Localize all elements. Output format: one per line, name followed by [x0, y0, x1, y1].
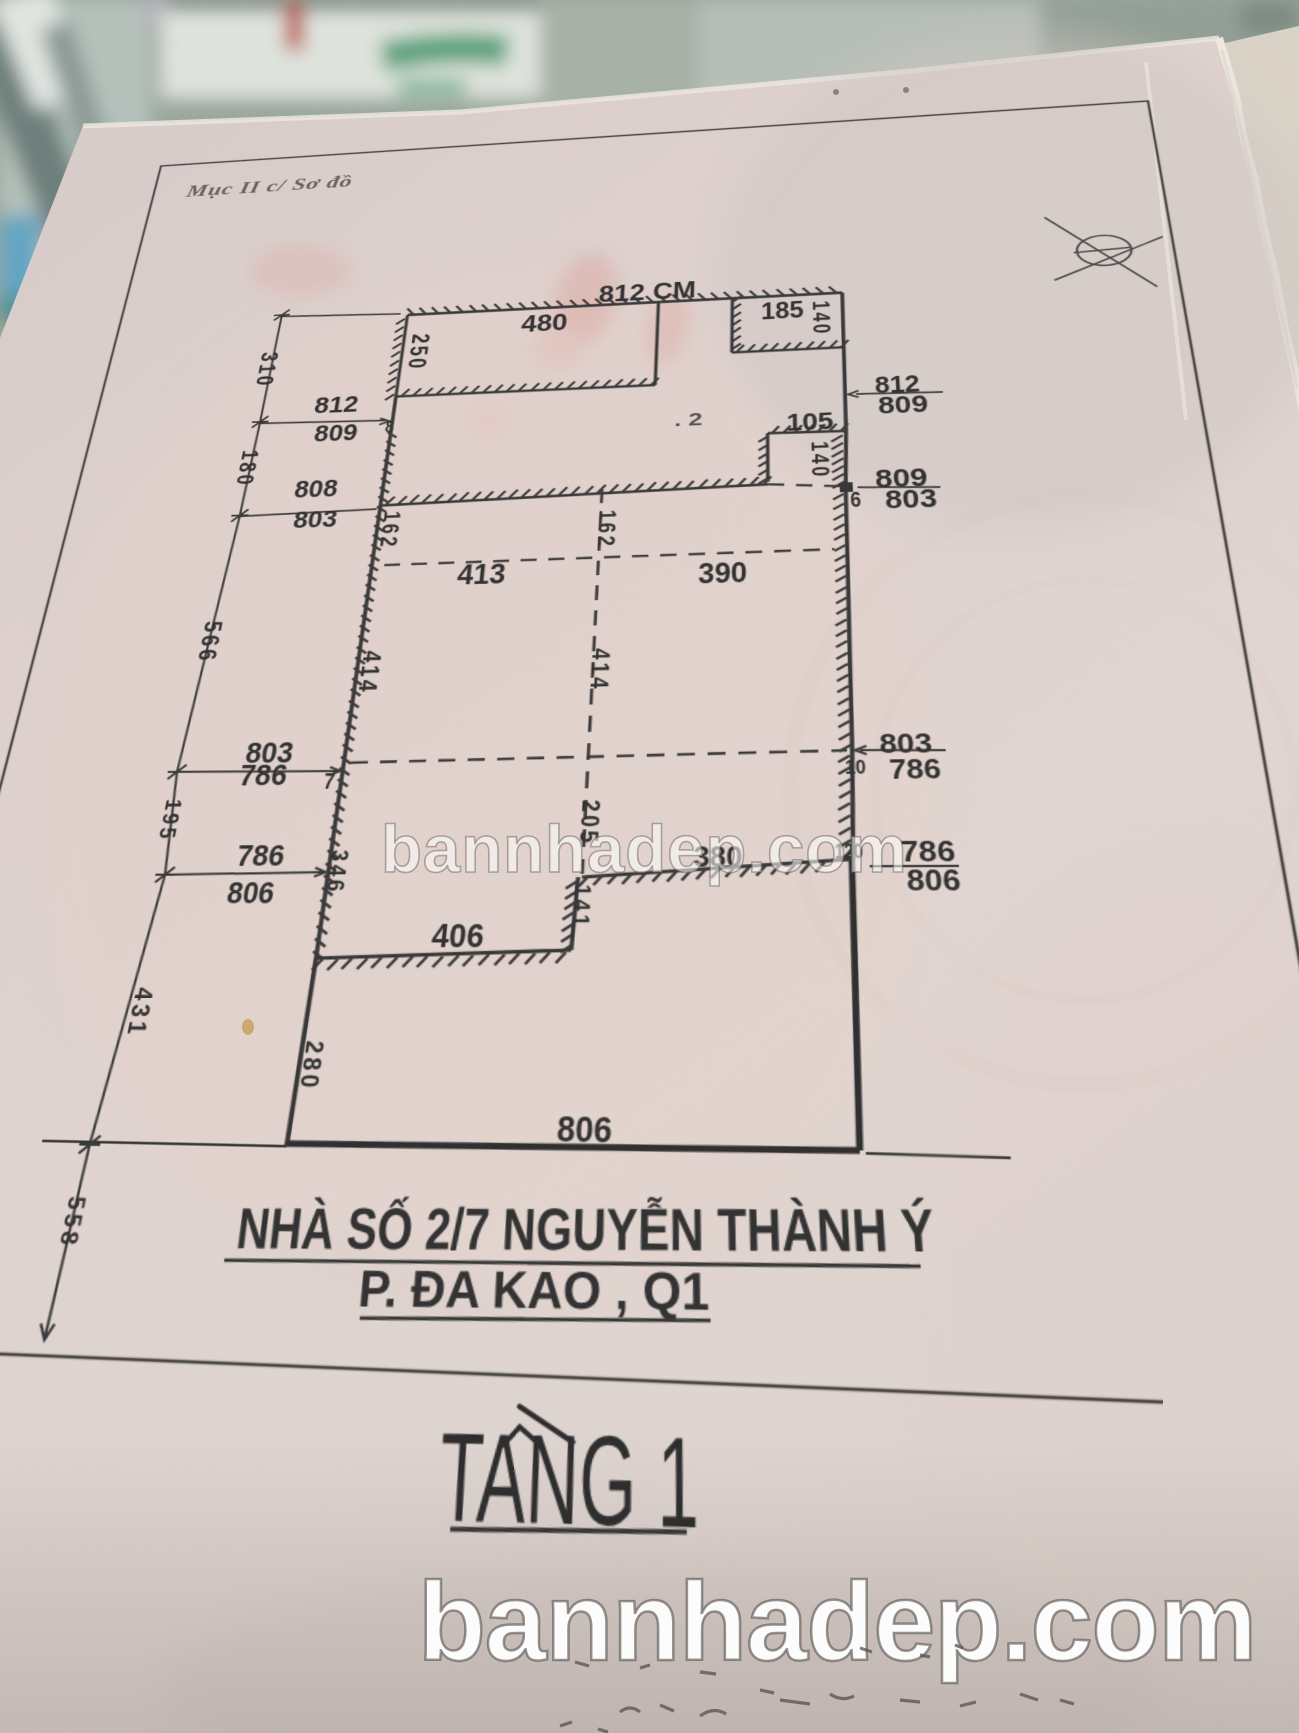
- svg-text:195: 195: [152, 799, 185, 842]
- svg-text:8: 8: [384, 417, 395, 436]
- svg-text:406: 406: [430, 917, 486, 955]
- svg-text:806: 806: [556, 1110, 613, 1151]
- svg-text:808: 808: [292, 475, 340, 504]
- svg-text:809: 809: [312, 419, 360, 447]
- svg-text:566: 566: [192, 621, 228, 664]
- svg-text:Mục II c/ Sơ đồ: Mục II c/ Sơ đồ: [183, 173, 354, 201]
- svg-text:141: 141: [567, 884, 597, 929]
- svg-text:803: 803: [884, 484, 938, 515]
- svg-text:812: 812: [312, 390, 360, 418]
- svg-text:NHÀ SỐ 2/7 NGUYỄN THÀNH Ý: NHÀ SỐ 2/7 NGUYỄN THÀNH Ý: [233, 1197, 937, 1265]
- svg-text:431: 431: [120, 987, 158, 1038]
- svg-text:10: 10: [845, 757, 867, 780]
- svg-text:786: 786: [234, 840, 287, 873]
- svg-text:7: 7: [322, 768, 337, 794]
- svg-text:162: 162: [591, 509, 620, 549]
- svg-text:558: 558: [54, 1196, 93, 1250]
- svg-text:809: 809: [877, 389, 929, 419]
- svg-text:414: 414: [584, 648, 615, 692]
- svg-text:390: 390: [698, 557, 748, 591]
- svg-text:803: 803: [291, 506, 339, 534]
- svg-text:786: 786: [237, 757, 290, 792]
- svg-text:250: 250: [402, 333, 435, 371]
- svg-text:806: 806: [224, 876, 277, 911]
- svg-text:P. ĐA KAO , Q1: P. ĐA KAO , Q1: [356, 1260, 710, 1322]
- svg-text:413: 413: [456, 559, 507, 592]
- svg-text:6: 6: [850, 488, 862, 511]
- svg-text:140: 140: [806, 441, 834, 480]
- svg-text:280: 280: [293, 1040, 328, 1091]
- svg-text:786: 786: [888, 754, 942, 786]
- svg-text:180: 180: [230, 449, 263, 487]
- svg-text:185: 185: [761, 297, 804, 326]
- svg-text:140: 140: [807, 300, 835, 336]
- svg-text:105: 105: [786, 406, 834, 436]
- svg-text:480: 480: [520, 309, 568, 338]
- svg-text:786: 786: [900, 837, 957, 869]
- svg-text:806: 806: [906, 866, 962, 898]
- svg-text:. 2: . 2: [674, 409, 703, 430]
- svg-text:812 CM: 812 CM: [598, 277, 696, 308]
- svg-text:310: 310: [250, 351, 283, 388]
